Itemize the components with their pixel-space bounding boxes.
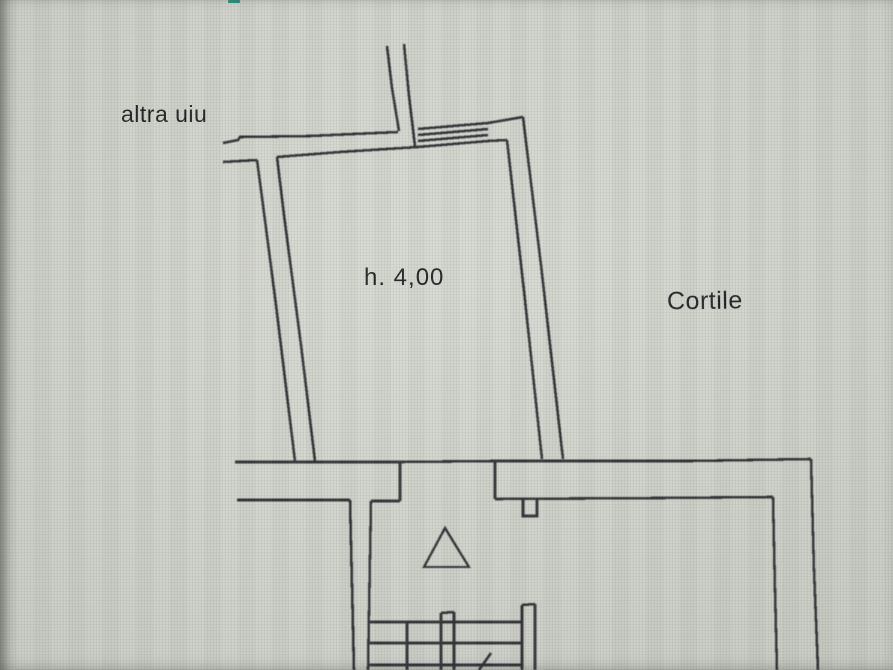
wall-notch-pier (523, 498, 537, 516)
window-hatch-line (418, 135, 488, 141)
screen-artifact-mark (228, 0, 240, 3)
upper-wall-inner-left (223, 160, 257, 162)
window-hatch-line (418, 141, 488, 147)
left-lower-wall-inner (368, 501, 371, 670)
main-room-wall-left-outer (257, 160, 295, 461)
stair-arrow-line (479, 653, 491, 670)
flue-wall-left (387, 46, 399, 131)
upper-wall-outer (223, 132, 398, 143)
window-hatch-line (418, 129, 488, 135)
mid-wall-outer (235, 459, 811, 462)
label-altra-uiu: altra uiu (121, 101, 207, 128)
right-wall-outer (811, 459, 818, 670)
main-room-wall-left-inner (277, 157, 315, 461)
label-cortile: Cortile (667, 286, 743, 316)
stair-wall-cap (522, 604, 535, 605)
flue-wall-right (404, 44, 415, 146)
main-room-wall-right-outer (523, 117, 563, 459)
stair-direction-triangle-icon (424, 528, 469, 567)
right-wall-inner (773, 497, 777, 670)
floorplan-photo: altra uiu h. 4,00 Cortile (0, 0, 893, 670)
main-room-wall-top-outer (488, 117, 523, 123)
stair-stringer-cap (441, 612, 454, 613)
window-hatch-line (418, 123, 488, 129)
label-room-height: h. 4,00 (364, 264, 444, 292)
left-lower-wall-outer (350, 500, 354, 670)
main-room-wall-top-inner (488, 140, 507, 141)
main-room-wall-right-inner (507, 140, 542, 459)
upper-wall-inner-right (277, 147, 418, 157)
